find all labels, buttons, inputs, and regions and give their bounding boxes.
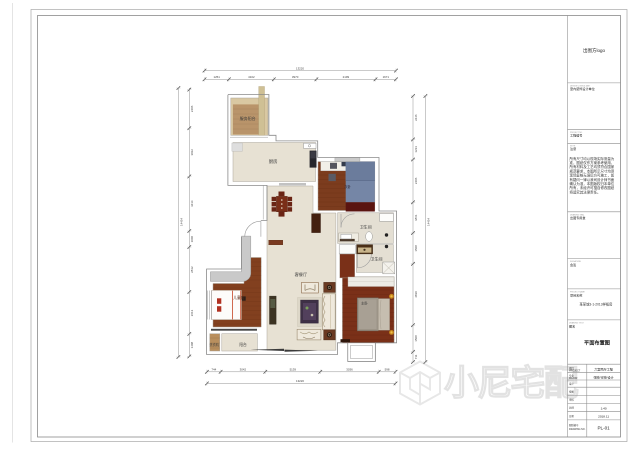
svg-text:出图方logo: 出图方logo bbox=[583, 47, 606, 54]
svg-text:4102: 4102 bbox=[248, 75, 255, 79]
svg-text:图纸编号: 图纸编号 bbox=[569, 423, 579, 427]
svg-text:绘图: 绘图 bbox=[569, 389, 574, 393]
svg-text:3036: 3036 bbox=[346, 368, 353, 372]
svg-text:将追究其法律责任。: 将追究其法律责任。 bbox=[570, 189, 601, 194]
svg-text:2199: 2199 bbox=[343, 75, 350, 79]
svg-text:审核: 审核 bbox=[569, 398, 574, 402]
svg-text:日期: 日期 bbox=[569, 414, 574, 418]
svg-text:4830: 4830 bbox=[414, 291, 418, 298]
svg-text:图名: 图名 bbox=[569, 324, 575, 329]
svg-text:平面布置图: 平面布置图 bbox=[584, 339, 610, 347]
svg-text:DRAWING NO.: DRAWING NO. bbox=[569, 428, 586, 431]
svg-text:注意: 注意 bbox=[570, 146, 576, 151]
svg-text:2613: 2613 bbox=[190, 309, 194, 316]
svg-text:出图专用章: 出图专用章 bbox=[570, 215, 585, 220]
svg-text:3414: 3414 bbox=[190, 200, 194, 207]
svg-text:1:40: 1:40 bbox=[601, 407, 607, 411]
svg-text:设计: 设计 bbox=[569, 381, 574, 385]
svg-text:598: 598 bbox=[385, 368, 390, 372]
svg-text:13220: 13220 bbox=[296, 67, 304, 71]
svg-text:PL-01: PL-01 bbox=[597, 426, 610, 431]
svg-text:张晓/可晓/设计: 张晓/可晓/设计 bbox=[593, 374, 613, 379]
svg-text:1861: 1861 bbox=[414, 214, 418, 221]
svg-text:1408: 1408 bbox=[190, 341, 194, 348]
svg-text:某某城3-1-2013样板房: 某某城3-1-2013样板房 bbox=[580, 302, 614, 307]
svg-text:2406: 2406 bbox=[414, 177, 418, 184]
svg-text:1251: 1251 bbox=[213, 75, 220, 79]
svg-text:711: 711 bbox=[414, 354, 418, 359]
svg-text:13220: 13220 bbox=[296, 379, 304, 383]
svg-text:2812: 2812 bbox=[190, 266, 194, 273]
svg-text:3970: 3970 bbox=[292, 75, 299, 79]
svg-text:项目名称: 项目名称 bbox=[570, 292, 582, 297]
svg-text:3042: 3042 bbox=[240, 368, 247, 372]
svg-text:MAJOR: MAJOR bbox=[569, 377, 578, 380]
svg-text:会签: 会签 bbox=[570, 262, 576, 267]
svg-text:比例: 比例 bbox=[569, 406, 574, 410]
svg-text:2406: 2406 bbox=[190, 105, 194, 112]
svg-text:2018.11: 2018.11 bbox=[598, 415, 609, 419]
svg-text:1233: 1233 bbox=[414, 146, 418, 153]
svg-text:1006: 1006 bbox=[190, 235, 194, 242]
svg-text:14434: 14434 bbox=[426, 218, 430, 226]
svg-text:1508: 1508 bbox=[414, 245, 418, 252]
svg-text:2446: 2446 bbox=[414, 114, 418, 121]
svg-text:1508: 1508 bbox=[414, 335, 418, 342]
svg-text:工程编号: 工程编号 bbox=[570, 133, 582, 138]
svg-text:1671: 1671 bbox=[383, 75, 390, 79]
svg-text:PROJECT: PROJECT bbox=[569, 370, 581, 373]
svg-text:3012: 3012 bbox=[190, 149, 194, 156]
svg-text:六室两厅工程: 六室两厅工程 bbox=[594, 367, 613, 372]
svg-text:744: 744 bbox=[211, 368, 216, 372]
svg-text:室内装饰设计单位: 室内装饰设计单位 bbox=[570, 86, 595, 91]
svg-text:5139: 5139 bbox=[290, 368, 297, 372]
svg-text:14434: 14434 bbox=[179, 218, 183, 226]
